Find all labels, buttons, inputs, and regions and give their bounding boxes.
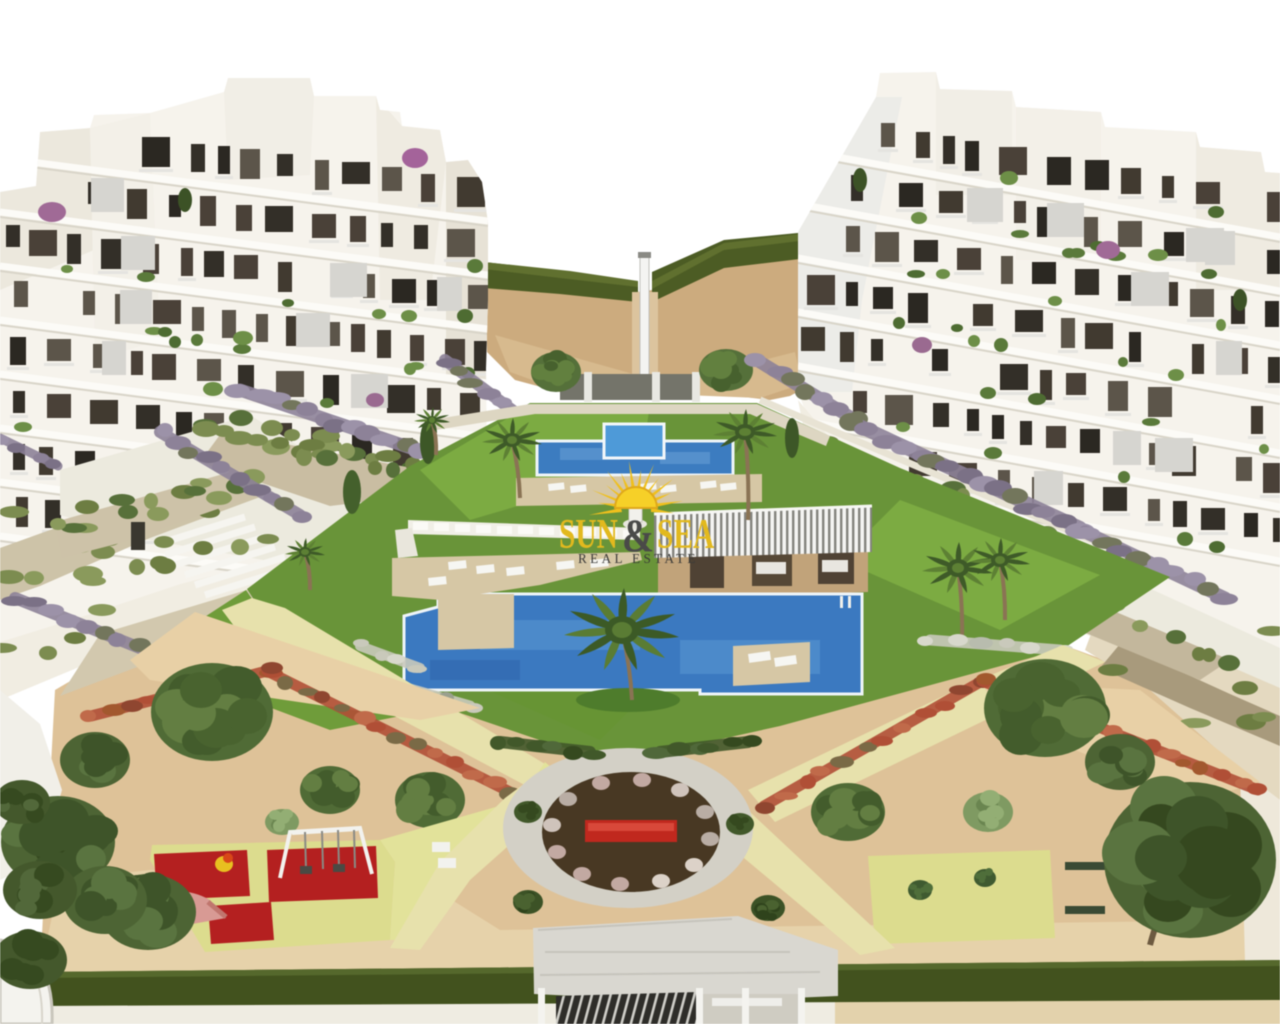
svg-text:REAL ESTATE: REAL ESTATE (578, 551, 699, 566)
